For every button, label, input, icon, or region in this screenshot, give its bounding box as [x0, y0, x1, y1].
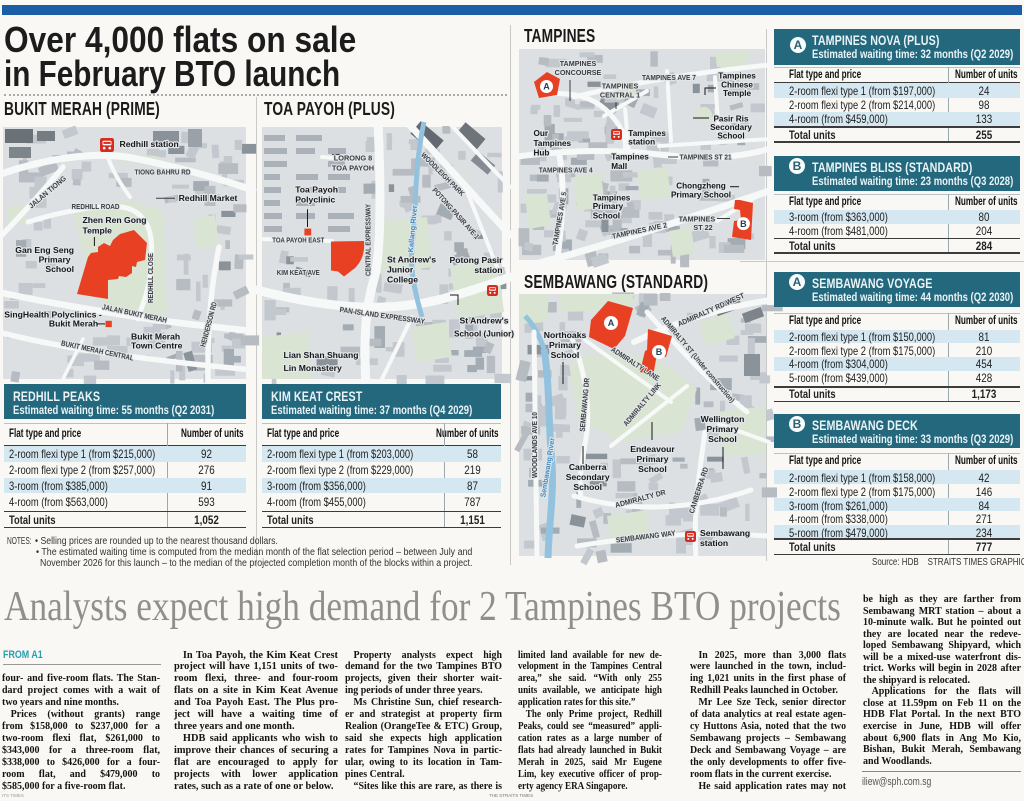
svg-text:College: College — [387, 275, 418, 285]
svg-text:KIM KEAT AVE: KIM KEAT AVE — [277, 268, 320, 277]
svg-text:Northoaks: Northoaks — [544, 330, 587, 340]
svg-text:Wellington: Wellington — [701, 414, 745, 424]
svg-text:CONCOURSE: CONCOURSE — [555, 68, 602, 77]
svg-text:TIONG BAHRU RD: TIONG BAHRU RD — [135, 168, 192, 177]
svg-text:School: School — [717, 132, 744, 141]
svg-text:Zhen Ren Gong: Zhen Ren Gong — [83, 215, 147, 225]
svg-text:REDHILL ROAD: REDHILL ROAD — [72, 202, 121, 211]
svg-text:TAMPINES ST 21: TAMPINES ST 21 — [680, 153, 732, 162]
svg-text:TAMPINES: TAMPINES — [602, 82, 639, 91]
svg-text:Tampines: Tampines — [593, 193, 631, 202]
svg-text:Mall: Mall — [611, 162, 627, 171]
svg-text:Primary School: Primary School — [671, 190, 731, 199]
svg-text:Primary: Primary — [636, 454, 668, 464]
svg-text:Canberra: Canberra — [569, 462, 607, 472]
svg-text:REDHILL CLOSE: REDHILL CLOSE — [146, 253, 155, 303]
svg-text:TAMPINES: TAMPINES — [560, 59, 597, 68]
svg-text:Gan Eng Seng: Gan Eng Seng — [15, 245, 74, 255]
svg-text:B: B — [656, 347, 663, 357]
svg-text:School: School — [573, 482, 602, 492]
svg-text:Endeavour: Endeavour — [630, 444, 675, 454]
svg-text:station: station — [628, 138, 655, 147]
svg-text:A: A — [608, 318, 615, 328]
svg-text:Potong Pasir: Potong Pasir — [449, 255, 503, 265]
svg-text:Temple: Temple — [83, 225, 113, 235]
svg-text:Primary: Primary — [549, 340, 581, 350]
svg-text:St Andrew's: St Andrew's — [387, 255, 436, 265]
svg-text:station: station — [474, 265, 502, 275]
svg-text:Primary: Primary — [39, 254, 71, 264]
svg-text:Sembawang: Sembawang — [700, 528, 750, 538]
svg-text:Redhill Market: Redhill Market — [179, 193, 238, 203]
svg-text:School: School — [593, 211, 620, 220]
svg-text:School: School — [551, 350, 580, 360]
svg-text:TAMPINES: TAMPINES — [679, 215, 716, 224]
svg-text:ST 22: ST 22 — [693, 223, 712, 232]
svg-text:WOODLANDS AVE 10: WOODLANDS AVE 10 — [530, 412, 539, 478]
svg-text:Temple: Temple — [723, 89, 752, 98]
svg-text:Hub: Hub — [534, 149, 550, 158]
svg-text:Lian Shan Shuang: Lian Shan Shuang — [284, 350, 359, 360]
svg-text:Tampines: Tampines — [611, 153, 649, 162]
svg-text:Pasir Ris: Pasir Ris — [713, 114, 748, 123]
svg-text:station: station — [700, 538, 728, 548]
svg-text:Lin Monastery: Lin Monastery — [284, 363, 342, 373]
svg-text:Redhill station: Redhill station — [120, 139, 179, 149]
svg-text:Secondary: Secondary — [566, 472, 610, 482]
svg-text:TAMPINES AVE 7: TAMPINES AVE 7 — [642, 73, 696, 82]
svg-text:TOA PAYOH EAST: TOA PAYOH EAST — [272, 236, 324, 245]
svg-text:Toa Payoh: Toa Payoh — [295, 184, 338, 194]
svg-text:Chongzheng: Chongzheng — [676, 182, 726, 191]
svg-text:Town Centre: Town Centre — [131, 340, 183, 350]
svg-text:Polyclinic: Polyclinic — [295, 194, 335, 204]
svg-text:School: School — [45, 264, 74, 274]
svg-text:TOA PAYOH: TOA PAYOH — [332, 164, 374, 173]
svg-text:TAMPINES AVE 4: TAMPINES AVE 4 — [539, 165, 593, 174]
svg-text:Our: Our — [534, 129, 549, 138]
svg-text:Bukit Merah: Bukit Merah — [49, 319, 98, 329]
svg-text:Primary: Primary — [593, 202, 624, 211]
svg-text:School: School — [638, 464, 667, 474]
svg-text:B: B — [740, 219, 747, 229]
svg-text:LORONG 8: LORONG 8 — [334, 154, 373, 163]
svg-text:School (Junior): School (Junior) — [454, 329, 514, 339]
svg-text:Primary: Primary — [706, 424, 738, 434]
svg-text:Chinese: Chinese — [721, 80, 753, 89]
svg-text:Tampines: Tampines — [534, 139, 572, 148]
svg-text:CENTRAL 1: CENTRAL 1 — [600, 91, 640, 100]
svg-text:Junior: Junior — [387, 265, 414, 275]
svg-text:School: School — [708, 434, 737, 444]
svg-text:CENTRAL EXPRESSWAY: CENTRAL EXPRESSWAY — [364, 204, 373, 276]
svg-text:St Andrew's: St Andrew's — [460, 315, 509, 325]
svg-text:A: A — [543, 82, 550, 92]
svg-text:Tampines: Tampines — [718, 72, 756, 81]
